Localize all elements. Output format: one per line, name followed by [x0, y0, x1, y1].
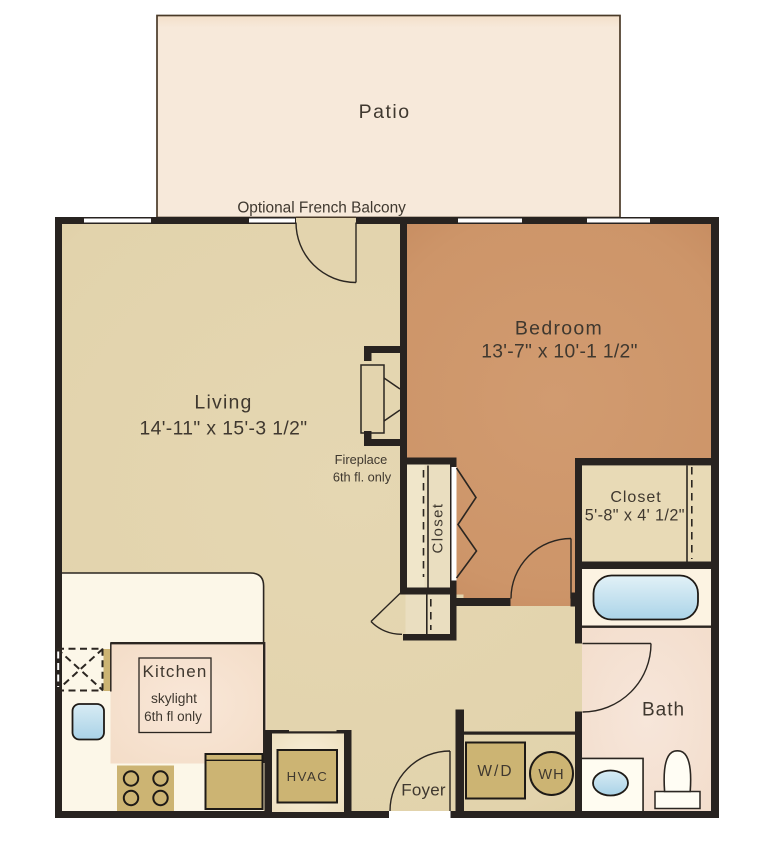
svg-text:5'-8" x 4' 1/2": 5'-8" x 4' 1/2" — [585, 507, 685, 525]
svg-text:W/D: W/D — [477, 763, 513, 780]
svg-text:Fireplace: Fireplace — [335, 452, 388, 467]
svg-text:Bedroom: Bedroom — [515, 318, 603, 340]
svg-text:Foyer: Foyer — [401, 781, 446, 800]
svg-text:Closet: Closet — [430, 503, 447, 554]
svg-text:skylight: skylight — [151, 691, 197, 706]
svg-text:14'-11" x 15'-3 1/2": 14'-11" x 15'-3 1/2" — [139, 419, 307, 440]
svg-text:Patio: Patio — [359, 101, 411, 123]
svg-text:13'-7" x 10'-1 1/2": 13'-7" x 10'-1 1/2" — [481, 342, 637, 363]
svg-text:Optional French Balcony: Optional French Balcony — [237, 200, 406, 217]
svg-text:Closet: Closet — [610, 489, 661, 506]
svg-text:WH: WH — [538, 767, 564, 783]
svg-text:HVAC: HVAC — [287, 769, 329, 784]
svg-text:Kitchen: Kitchen — [142, 662, 207, 681]
svg-text:6th fl. only: 6th fl. only — [333, 470, 392, 485]
svg-text:Bath: Bath — [642, 700, 685, 721]
svg-text:6th fl only: 6th fl only — [144, 709, 202, 724]
svg-text:Living: Living — [194, 392, 252, 414]
